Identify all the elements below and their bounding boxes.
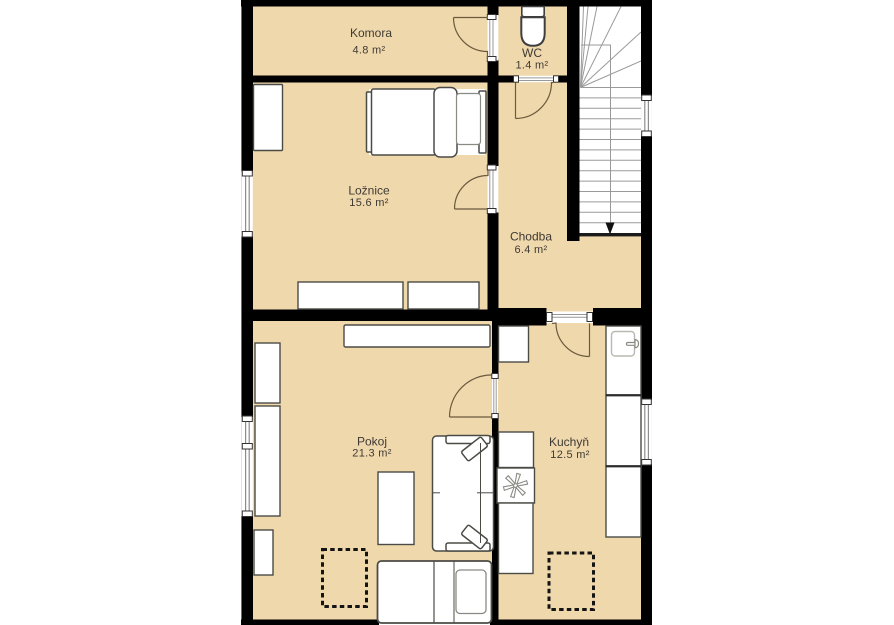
svg-text:4.8 m²: 4.8 m²: [353, 45, 386, 57]
svg-text:21.3 m²: 21.3 m²: [352, 447, 391, 459]
svg-text:Komora: Komora: [350, 26, 392, 40]
svg-text:Kuchyň: Kuchyň: [549, 435, 589, 449]
svg-text:12.5 m²: 12.5 m²: [550, 449, 589, 461]
svg-text:WC: WC: [522, 46, 542, 60]
svg-text:6.4 m²: 6.4 m²: [515, 244, 548, 256]
svg-text:Chodba: Chodba: [510, 230, 552, 244]
svg-text:1.4 m²: 1.4 m²: [516, 60, 549, 72]
svg-text:15.6 m²: 15.6 m²: [349, 197, 388, 209]
svg-text:Ložnice: Ložnice: [348, 184, 390, 198]
svg-text:Pokoj: Pokoj: [357, 434, 387, 448]
